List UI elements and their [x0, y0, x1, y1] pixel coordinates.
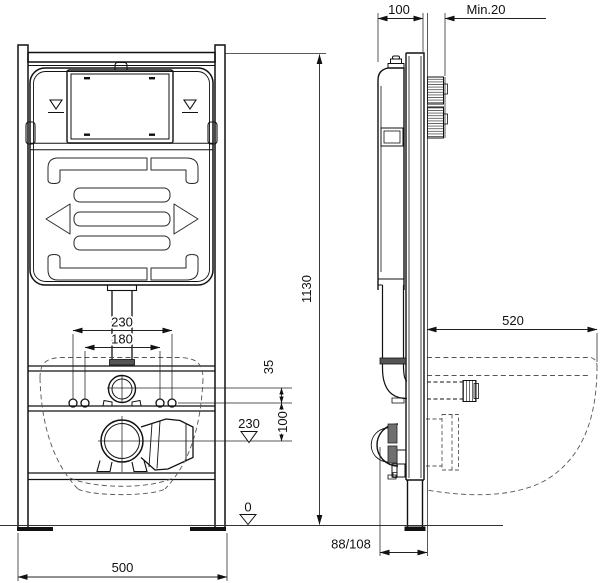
dim-bolts-inner-label: 180 [111, 332, 133, 347]
flush-pipe-side [383, 285, 404, 358]
panel-tab [115, 63, 127, 71]
dim-bowl-projection-label: 520 [502, 313, 524, 328]
front-view [17, 45, 226, 529]
bowl-outline-front [40, 358, 203, 495]
frame-profile-side [393, 53, 426, 531]
datum-floor-label: 0 [244, 500, 251, 515]
dim-front-height-label: 1130 [299, 275, 314, 303]
supply-connector-side [427, 381, 479, 402]
foot-side [408, 480, 423, 527]
installation-drawing-page: 500 1130 230 180 35 100 230 0 100 Min.20… [0, 0, 608, 583]
drain-outlet-front [97, 419, 193, 472]
cistern-side [378, 56, 407, 403]
pipe-coupling [110, 360, 135, 366]
flush-plate-unit [428, 77, 448, 138]
datum-triangle-floor-icon [240, 515, 256, 525]
dim-drain-offset-label: 100 [275, 411, 290, 433]
dim-outlet-offset-label: 88/108 [331, 537, 371, 552]
cistern-rib-pattern [46, 158, 198, 280]
drain-elbow-side [371, 424, 405, 479]
bowl-outline-side [427, 358, 597, 495]
side-view [371, 53, 597, 531]
technical-drawing: 500 1130 230 180 35 100 230 0 100 Min.20… [0, 0, 608, 583]
filler-cap [388, 56, 404, 68]
frame-rails [17, 45, 226, 529]
dim-supply-offset-label: 35 [261, 360, 276, 374]
access-panel [67, 63, 173, 144]
dim-bolts-outer-label: 230 [111, 315, 133, 330]
datum-drain-label: 230 [238, 416, 260, 431]
panel-corner-marks [84, 77, 155, 136]
outlet-connector-dashed [426, 415, 459, 471]
dim-frame-depth-label: 100 [388, 2, 410, 17]
dim-min-wall-label: Min.20 [466, 2, 505, 17]
dim-front-width-label: 500 [112, 560, 134, 575]
